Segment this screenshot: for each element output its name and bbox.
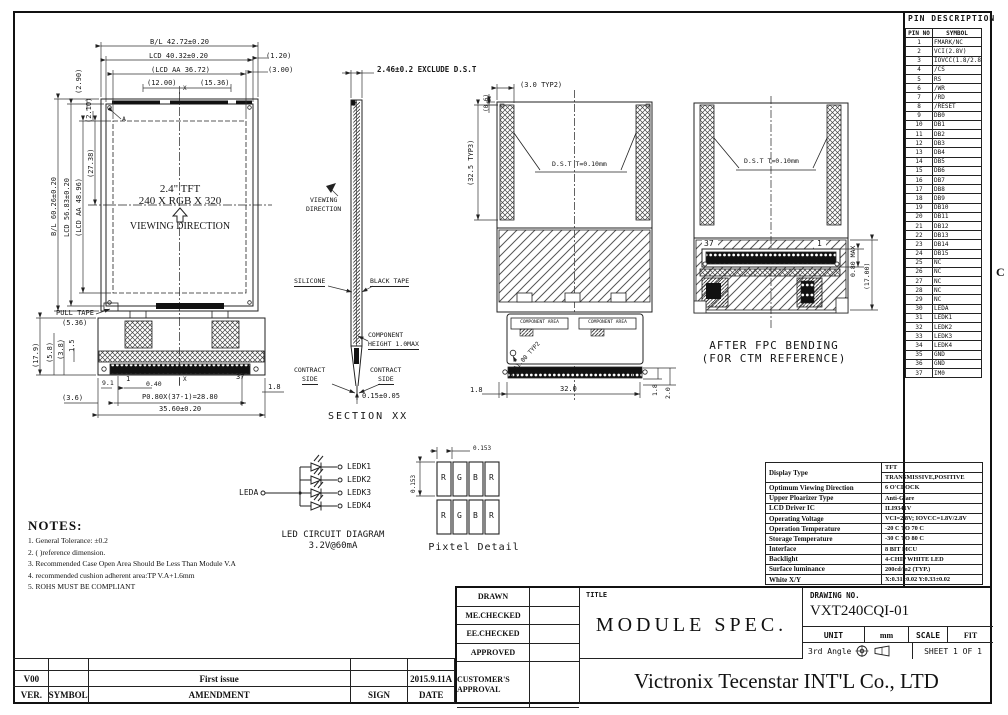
pin-no-cell: 37 xyxy=(906,368,933,377)
pin-symbol-cell: GND xyxy=(933,359,982,368)
pin-symbol-cell: LEDK3 xyxy=(933,332,982,341)
pin-symbol-cell: DB1 xyxy=(933,120,982,129)
pixel-dim-h: 0.153 xyxy=(473,446,491,452)
pin-symbol-cell: GND xyxy=(933,350,982,359)
pin-no-cell: 5 xyxy=(906,74,933,83)
pin-no-cell: 34 xyxy=(906,341,933,350)
drawing-title: MODULE SPEC. xyxy=(580,614,803,637)
section-caption: SECTION XX xyxy=(328,412,408,423)
pin-symbol-cell: DB8 xyxy=(933,185,982,194)
silicone-label: SILICONE xyxy=(294,278,325,287)
spec-label: Operating Voltage xyxy=(766,513,882,523)
pin-symbol-cell: /RD xyxy=(933,93,982,102)
pin-row: 17 DB8 xyxy=(906,185,982,194)
approval-signature-cell xyxy=(530,625,579,643)
pin-row: 24 DB15 xyxy=(906,249,982,258)
pin-row: 16 DB7 xyxy=(906,176,982,185)
dim-aa-height: (LCD AA 48.96) xyxy=(76,178,83,237)
pin-row: 1 FMARK/NC xyxy=(906,38,982,47)
dim-36: (3.6) xyxy=(62,395,83,402)
rev-amendment-header: AMENDMENT xyxy=(89,687,351,703)
pin-symbol-cell: DB13 xyxy=(933,231,982,240)
black-tape-label: BLACK TAPE xyxy=(370,278,409,287)
pin-symbol-cell: FMARK/NC xyxy=(933,38,982,47)
pin-symbol-cell: NC xyxy=(933,267,982,276)
pin-no-cell: 20 xyxy=(906,212,933,221)
pin-row: 14 DB5 xyxy=(906,157,982,166)
spec-label: Interface xyxy=(766,544,882,554)
panel-resolution-text: 240 X RGB X 320 xyxy=(120,196,240,208)
ledk4-label: LEDK4 xyxy=(347,502,371,510)
title-label: TITLE xyxy=(586,591,607,599)
dim-06: (0.6) xyxy=(484,94,490,112)
dim-18: 1.8 xyxy=(268,384,281,391)
pin-row: 9 DB0 xyxy=(906,111,982,120)
spec-table: Display Type TFT TRANSMISSIVE,POSITIVE O… xyxy=(765,462,983,585)
dim-040: 0.40 xyxy=(146,381,162,388)
spec-value: ILI9341V xyxy=(882,503,983,513)
pin-row: 10 DB1 xyxy=(906,120,982,129)
pin-symbol-cell: NC xyxy=(933,277,982,286)
contract-side-right-1: CONTRACT xyxy=(370,367,401,374)
pin-row: 12 DB3 xyxy=(906,139,982,148)
pin-no-cell: 23 xyxy=(906,240,933,249)
pin-37-label: 37 xyxy=(236,374,244,381)
revision-table: V00 First issue 2015.9.11A VER. SYMBOL A… xyxy=(13,658,455,703)
dim-38: (3.8) xyxy=(58,339,65,360)
third-angle-label: 3rd Angle xyxy=(808,647,851,656)
pin-symbol-cell: DB10 xyxy=(933,203,982,212)
approval-row: ME.CHECKED xyxy=(457,607,579,626)
pin-row: 29 NC xyxy=(906,295,982,304)
pin-no-cell: 14 xyxy=(906,157,933,166)
pin-row: 19 DB10 xyxy=(906,203,982,212)
spec-label: White X/Y xyxy=(766,575,882,585)
dim-15: 1.5 xyxy=(69,339,76,352)
datum-x-top: X xyxy=(183,86,187,92)
subpixel-g2: G xyxy=(457,512,462,520)
approval-label: EE.CHECKED xyxy=(457,625,530,643)
pin-symbol-cell: /CS xyxy=(933,65,982,74)
spec-row: Interface 8 BIT MCU xyxy=(766,544,983,554)
spec-value: TRANSMISSIVE,POSITIVE xyxy=(882,473,983,483)
pin-symbol-cell: LEDK4 xyxy=(933,341,982,350)
rev-symbol xyxy=(49,671,89,686)
drawing-no-value: VXT240CQI-01 xyxy=(810,603,909,620)
pin-no-cell: 35 xyxy=(906,350,933,359)
pin-symbol-cell: NC xyxy=(933,286,982,295)
pin-row: 35 GND xyxy=(906,350,982,359)
dim-325-typ3: (32.5 TYP3) xyxy=(468,140,475,186)
pin-row: 15 DB6 xyxy=(906,166,982,175)
pin-symbol-cell: DB4 xyxy=(933,148,982,157)
rear-pin-37: 37 xyxy=(509,372,519,380)
dim-12: (12.00) xyxy=(147,80,177,87)
component-area-2: COMPONENT AREA xyxy=(580,321,635,326)
drawing-no-label: DRAWING NO. xyxy=(810,591,860,600)
dim-536: (5.36) xyxy=(62,320,87,327)
dim-58: (5.8) xyxy=(47,342,54,363)
title-block: DRAWN ME.CHECKED EE.CHECKED APPR xyxy=(455,586,992,704)
approval-row: DRAWN xyxy=(457,588,579,607)
pin-no-cell: 19 xyxy=(906,203,933,212)
dim-32: 32.0 xyxy=(560,386,577,393)
pin-no-cell: 7 xyxy=(906,93,933,102)
pin-row: 8 /RESET xyxy=(906,102,982,111)
rev-date-header: DATE xyxy=(408,687,455,703)
pin-no-cell: 1 xyxy=(906,38,933,47)
pin-row: 5 RS xyxy=(906,74,982,83)
pin-no-cell: 32 xyxy=(906,323,933,332)
note-item: 5. ROHS MUST BE COMPLIANT xyxy=(28,582,308,591)
pin-row: 21 DB12 xyxy=(906,221,982,230)
pin-no-cell: 12 xyxy=(906,139,933,148)
spec-value: 6 O'CLOCK xyxy=(882,483,983,493)
dim-18-left: 1.8 xyxy=(470,387,483,394)
leda-label: LEDA xyxy=(239,489,258,497)
drawing-number-area: DRAWING NO. VXT240CQI-01 UNIT mm SCALE F… xyxy=(802,588,993,658)
pin-no-cell: 22 xyxy=(906,231,933,240)
spec-value: VCI=2.8V; IOVCC=1.8V/2.8V xyxy=(882,513,983,523)
notes-title: NOTES: xyxy=(28,518,308,534)
pin-no-cell: 25 xyxy=(906,258,933,267)
pin-row: 30 LEDA xyxy=(906,304,982,313)
section-view xyxy=(326,70,380,404)
pin-no-cell: 36 xyxy=(906,359,933,368)
pin-no-cell: 33 xyxy=(906,332,933,341)
pin-no-cell: 26 xyxy=(906,267,933,276)
dim-17: (17.00) xyxy=(864,263,871,290)
pin-symbol-cell: /RESET xyxy=(933,102,982,111)
pin-row: 3 IOVCC(1.8/2.8V) xyxy=(906,56,982,65)
pin-symbol-cell: DB15 xyxy=(933,249,982,258)
spec-row: Upper Ploarizer Type Anti-Glare xyxy=(766,493,983,503)
rev-sign xyxy=(351,671,409,686)
pin-no-cell: 10 xyxy=(906,120,933,129)
dim-aa-width: (LCD AA 36.72) xyxy=(151,67,210,74)
viewing-direction-text: VIEWING DIRECTION xyxy=(120,222,240,233)
dim-015: 0.15±0.05 xyxy=(362,393,400,400)
approval-signature-cell xyxy=(530,644,579,662)
subpixel-b2: B xyxy=(473,512,478,520)
dim-179: (17.9) xyxy=(33,343,40,368)
subpixel-b1: B xyxy=(473,474,478,482)
pin-symbol-header: SYMBOL xyxy=(933,29,982,38)
approval-row: APPROVED xyxy=(457,644,579,663)
pin-symbol-cell: NC xyxy=(933,258,982,267)
contract-side-left-1: CONTRACT xyxy=(294,367,325,374)
contract-side-right-2: SIDE xyxy=(378,376,394,385)
pin-row: 13 DB4 xyxy=(906,148,982,157)
rev-ver: V00 xyxy=(13,671,49,686)
spec-value: Anti-Glare xyxy=(882,493,983,503)
pin-table: PIN NO SYMBOL 1 FMARK/NC 2 VCI(2.8V) 3 I… xyxy=(905,28,982,378)
subpixel-r2b: R xyxy=(489,512,494,520)
subpixel-r1: R xyxy=(441,474,446,482)
ledk3-label: LEDK3 xyxy=(347,489,371,497)
approval-label: APPROVED xyxy=(457,644,530,662)
revision-header-row: VER. SYMBOL AMENDMENT SIGN DATE xyxy=(13,686,455,703)
pin-no-cell: 27 xyxy=(906,277,933,286)
pin-no-cell: 4 xyxy=(906,65,933,74)
spec-row: Operating Voltage VCI=2.8V; IOVCC=1.8V/2… xyxy=(766,513,983,523)
pin-symbol-cell: DB6 xyxy=(933,166,982,175)
pin-symbol-cell: DB3 xyxy=(933,139,982,148)
section-viewing-1: VIEWING xyxy=(310,197,337,204)
pin-symbol-cell: DB14 xyxy=(933,240,982,249)
subpixel-r1b: R xyxy=(489,474,494,482)
pin-symbol-cell: DB5 xyxy=(933,157,982,166)
spec-value: TFT xyxy=(882,463,983,473)
spec-row: Operation Temperature -20 C TO 70 C xyxy=(766,524,983,534)
spec-label: Storage Temperature xyxy=(766,534,882,544)
pixel-detail xyxy=(416,447,499,534)
approval-row: EE.CHECKED xyxy=(457,625,579,644)
customer-approval-label: CUSTOMER'S APPROVAL xyxy=(457,662,530,707)
component-area-1: COMPONENT AREA xyxy=(512,321,567,326)
title-area: TITLE MODULE SPEC. xyxy=(579,588,803,659)
dim-120: (1.20) xyxy=(266,53,291,60)
pin-row: 26 NC xyxy=(906,267,982,276)
pin-symbol-cell: /WR xyxy=(933,84,982,93)
component-height-1: COMPONENT xyxy=(368,332,403,339)
subpixel-r2: R xyxy=(441,512,446,520)
note-item: 3. Recommended Case Open Area Should Be … xyxy=(28,559,308,568)
pin-row: 28 NC xyxy=(906,286,982,295)
pin-row: 36 GND xyxy=(906,359,982,368)
rev-date: 2015.9.11A xyxy=(408,671,455,686)
dim-thickness: 2.46±0.2 EXCLUDE D.S.T xyxy=(377,66,476,74)
scale-value: FIT xyxy=(948,627,993,643)
pin-row: 32 LEDK2 xyxy=(906,323,982,332)
revision-row: V00 First issue 2015.9.11A xyxy=(13,670,455,686)
pull-tape-label: PULL TAPE xyxy=(56,310,94,317)
rev-amendment: First issue xyxy=(89,671,351,686)
approval-label: ME.CHECKED xyxy=(457,607,530,625)
rev-sign-header: SIGN xyxy=(351,687,409,703)
approval-label: DRAWN xyxy=(457,588,530,606)
unit-scale-row: UNIT mm SCALE FIT xyxy=(803,626,993,643)
spec-value: 8 BIT MCU xyxy=(882,544,983,554)
rev-symbol-header: SYMBOL xyxy=(49,687,89,703)
pin-symbol-cell: DB7 xyxy=(933,176,982,185)
spec-value: 4-CHIP WHITE LED xyxy=(882,554,983,564)
pin-symbol-cell: NC xyxy=(933,295,982,304)
dim-total-width: 35.60±0.20 xyxy=(159,406,201,413)
pin-no-header: PIN NO xyxy=(906,29,933,38)
customer-approval-row: CUSTOMER'S APPROVAL xyxy=(457,662,579,708)
spec-label: Upper Ploarizer Type xyxy=(766,493,882,503)
pin-1-label: 1 xyxy=(126,376,130,383)
pin-symbol-cell: IOVCC(1.8/2.8V) xyxy=(933,56,982,65)
pin-row: 31 LEDK1 xyxy=(906,313,982,322)
pin-no-cell: 2 xyxy=(906,47,933,56)
spec-value: -20 C TO 70 C xyxy=(882,524,983,534)
spec-value: X:0.31±0.02 Y:0.33±0.02 xyxy=(882,575,983,585)
pin-symbol-cell: LEDA xyxy=(933,304,982,313)
pin-symbol-cell: DB11 xyxy=(933,212,982,221)
pin-no-cell: 16 xyxy=(906,176,933,185)
company-name: Victronix Tecenstar INT'L Co., LTD xyxy=(579,658,993,704)
spec-label: Display Type xyxy=(766,463,882,483)
pin-no-cell: 28 xyxy=(906,286,933,295)
dim-210: (2.10) xyxy=(86,98,93,123)
pin-symbol-cell: DB9 xyxy=(933,194,982,203)
pin-row: 4 /CS xyxy=(906,65,982,74)
pin-row: 22 DB13 xyxy=(906,231,982,240)
pin-symbol-cell: RS xyxy=(933,74,982,83)
drawing-sheet: B/L 42.72±0.20 LCD 40.32±0.20 (LCD AA 36… xyxy=(0,0,1008,715)
pin-row: 11 DB2 xyxy=(906,130,982,139)
pin-table-title: PIN DESCRIPTION xyxy=(908,15,995,23)
datum-a-label: A xyxy=(122,116,126,123)
pin-no-cell: 31 xyxy=(906,313,933,322)
pin-no-cell: 29 xyxy=(906,295,933,304)
pin-no-cell: 3 xyxy=(906,56,933,65)
note-item: 2. ( )reference dimension. xyxy=(28,548,308,557)
bent-caption-2: (FOR CTM REFERENCE) xyxy=(690,353,858,365)
pin-no-cell: 17 xyxy=(906,185,933,194)
component-height-2: HEIGHT 1.0MAX xyxy=(368,341,419,350)
pin-no-cell: 13 xyxy=(906,148,933,157)
dim-18-right: 1.8 xyxy=(652,384,659,396)
zone-marker: C xyxy=(996,266,1005,279)
note-item: 4. recommended cushion adherent area:TP … xyxy=(28,571,308,580)
dim-290: (2.90) xyxy=(76,69,83,94)
note-item: 1. General Tolerance: ±0.2 xyxy=(28,536,308,545)
spec-row: Surface luminance 200cd/m2 (TYP.) xyxy=(766,564,983,574)
spec-label: LCD Driver IC xyxy=(766,503,882,513)
revision-empty-row xyxy=(13,658,455,670)
section-viewing-2: DIRECTION xyxy=(306,206,341,213)
pin-no-cell: 30 xyxy=(906,304,933,313)
ledk2-label: LEDK2 xyxy=(347,476,371,484)
spec-row: White X/Y X:0.31±0.02 Y:0.33±0.02 xyxy=(766,575,983,585)
spec-value: -30 C TO 80 C xyxy=(882,534,983,544)
ledk1-label: LEDK1 xyxy=(347,463,371,471)
approval-signature-cell xyxy=(530,607,579,625)
dim-20: 2.0 xyxy=(665,387,672,399)
subpixel-g1: G xyxy=(457,474,462,482)
spec-label: Operation Temperature xyxy=(766,524,882,534)
angle-sheet-row: 3rd Angle SHEET 1 OF 1 xyxy=(803,642,993,659)
spec-row: Optimum Viewing Direction 6 O'CLOCK xyxy=(766,483,983,493)
scale-label: SCALE xyxy=(909,627,948,643)
spec-row: Display Type TFT xyxy=(766,463,983,473)
pin-row: 23 DB14 xyxy=(906,240,982,249)
pin-row: 18 DB9 xyxy=(906,194,982,203)
rear-pin-1: 1 xyxy=(630,372,635,380)
dim-30-typ2: (3.0 TYP2) xyxy=(520,82,562,89)
dim-1536: (15.36) xyxy=(200,80,230,87)
pin-row: 6 /WR xyxy=(906,84,982,93)
pin-row: 27 NC xyxy=(906,277,982,286)
pin-row: 20 DB11 xyxy=(906,212,982,221)
bent-view xyxy=(694,96,878,330)
pin-row: 33 LEDK3 xyxy=(906,332,982,341)
contract-side-left-2: SIDE xyxy=(302,376,318,385)
dim-080-max: 0.80 MAX xyxy=(850,246,857,277)
pin-symbol-cell: IM0 xyxy=(933,368,982,377)
dst-label: D.S.T T=0.10mm xyxy=(552,161,607,168)
spec-label: Optimum Viewing Direction xyxy=(766,483,882,493)
pin-symbol-cell: DB12 xyxy=(933,221,982,230)
rear-view xyxy=(474,84,676,400)
unit-label: UNIT xyxy=(803,627,865,643)
led-circuit xyxy=(261,455,342,511)
pin-no-cell: 15 xyxy=(906,166,933,175)
viewing-direction-arrow-icon xyxy=(171,207,189,223)
spec-row: Storage Temperature -30 C TO 80 C xyxy=(766,534,983,544)
dim-2738: (27.38) xyxy=(88,148,95,178)
pin-row: 2 VCI(2.8V) xyxy=(906,47,982,56)
dim-bl-height: B/L 60.26±0.20 xyxy=(51,177,58,236)
sheet-label: SHEET 1 OF 1 xyxy=(913,643,993,659)
pin-no-cell: 9 xyxy=(906,111,933,120)
pin-symbol-cell: DB2 xyxy=(933,130,982,139)
spec-label: Surface luminance xyxy=(766,564,882,574)
pin-no-cell: 6 xyxy=(906,84,933,93)
spec-row: Backlight 4-CHIP WHITE LED xyxy=(766,554,983,564)
spec-label: Backlight xyxy=(766,554,882,564)
pin-no-cell: 21 xyxy=(906,221,933,230)
angle-cell: 3rd Angle xyxy=(803,643,913,659)
dim-lcd-width: LCD 40.32±0.20 xyxy=(149,53,208,60)
approval-signature-cell xyxy=(530,588,579,606)
pin-no-cell: 24 xyxy=(906,249,933,258)
pin-symbol-cell: LEDK1 xyxy=(933,313,982,322)
pin-no-cell: 18 xyxy=(906,194,933,203)
datum-x-bottom: X xyxy=(183,377,187,383)
dim-pitch: P0.80X(37-1)=28.80 xyxy=(142,394,218,401)
bent-pin-1: 1 xyxy=(817,240,822,248)
pin-symbol-cell: DB0 xyxy=(933,111,982,120)
dim-bl-width: B/L 42.72±0.20 xyxy=(150,39,209,46)
pin-symbol-cell: VCI(2.8V) xyxy=(933,47,982,56)
pin-row: 37 IM0 xyxy=(906,368,982,377)
bent-dst-label: D.S.T T=0.10mm xyxy=(744,158,799,165)
bent-caption-1: AFTER FPC BENDING xyxy=(690,340,858,352)
pin-row: 34 LEDK4 xyxy=(906,341,982,350)
rev-ver-header: VER. xyxy=(13,687,49,703)
dim-300: (3.00) xyxy=(268,67,293,74)
unit-value: mm xyxy=(865,627,909,643)
pin-no-cell: 11 xyxy=(906,130,933,139)
panel-size-text: 2.4" TFT xyxy=(120,184,240,196)
spec-value: 200cd/m2 (TYP.) xyxy=(882,564,983,574)
bent-pin-37: 37 xyxy=(704,240,714,248)
dim-lcd-height: LCD 56.83±0.20 xyxy=(64,178,71,237)
pin-row: 25 NC xyxy=(906,258,982,267)
notes-list: 1. General Tolerance: ±0.22. ( )referenc… xyxy=(28,536,308,591)
approval-column: DRAWN ME.CHECKED EE.CHECKED APPR xyxy=(457,588,579,704)
notes-block: NOTES: 1. General Tolerance: ±0.22. ( )r… xyxy=(28,518,308,594)
third-angle-projection-icon xyxy=(855,645,893,657)
pin-row: 7 /RD xyxy=(906,93,982,102)
dim-91: 9.1 xyxy=(102,380,114,387)
pixel-dim-v: 0.153 xyxy=(411,475,417,493)
spec-row: LCD Driver IC ILI9341V xyxy=(766,503,983,513)
pin-no-cell: 8 xyxy=(906,102,933,111)
pixel-caption: Pixtel Detail xyxy=(416,543,532,554)
pin-symbol-cell: LEDK2 xyxy=(933,323,982,332)
